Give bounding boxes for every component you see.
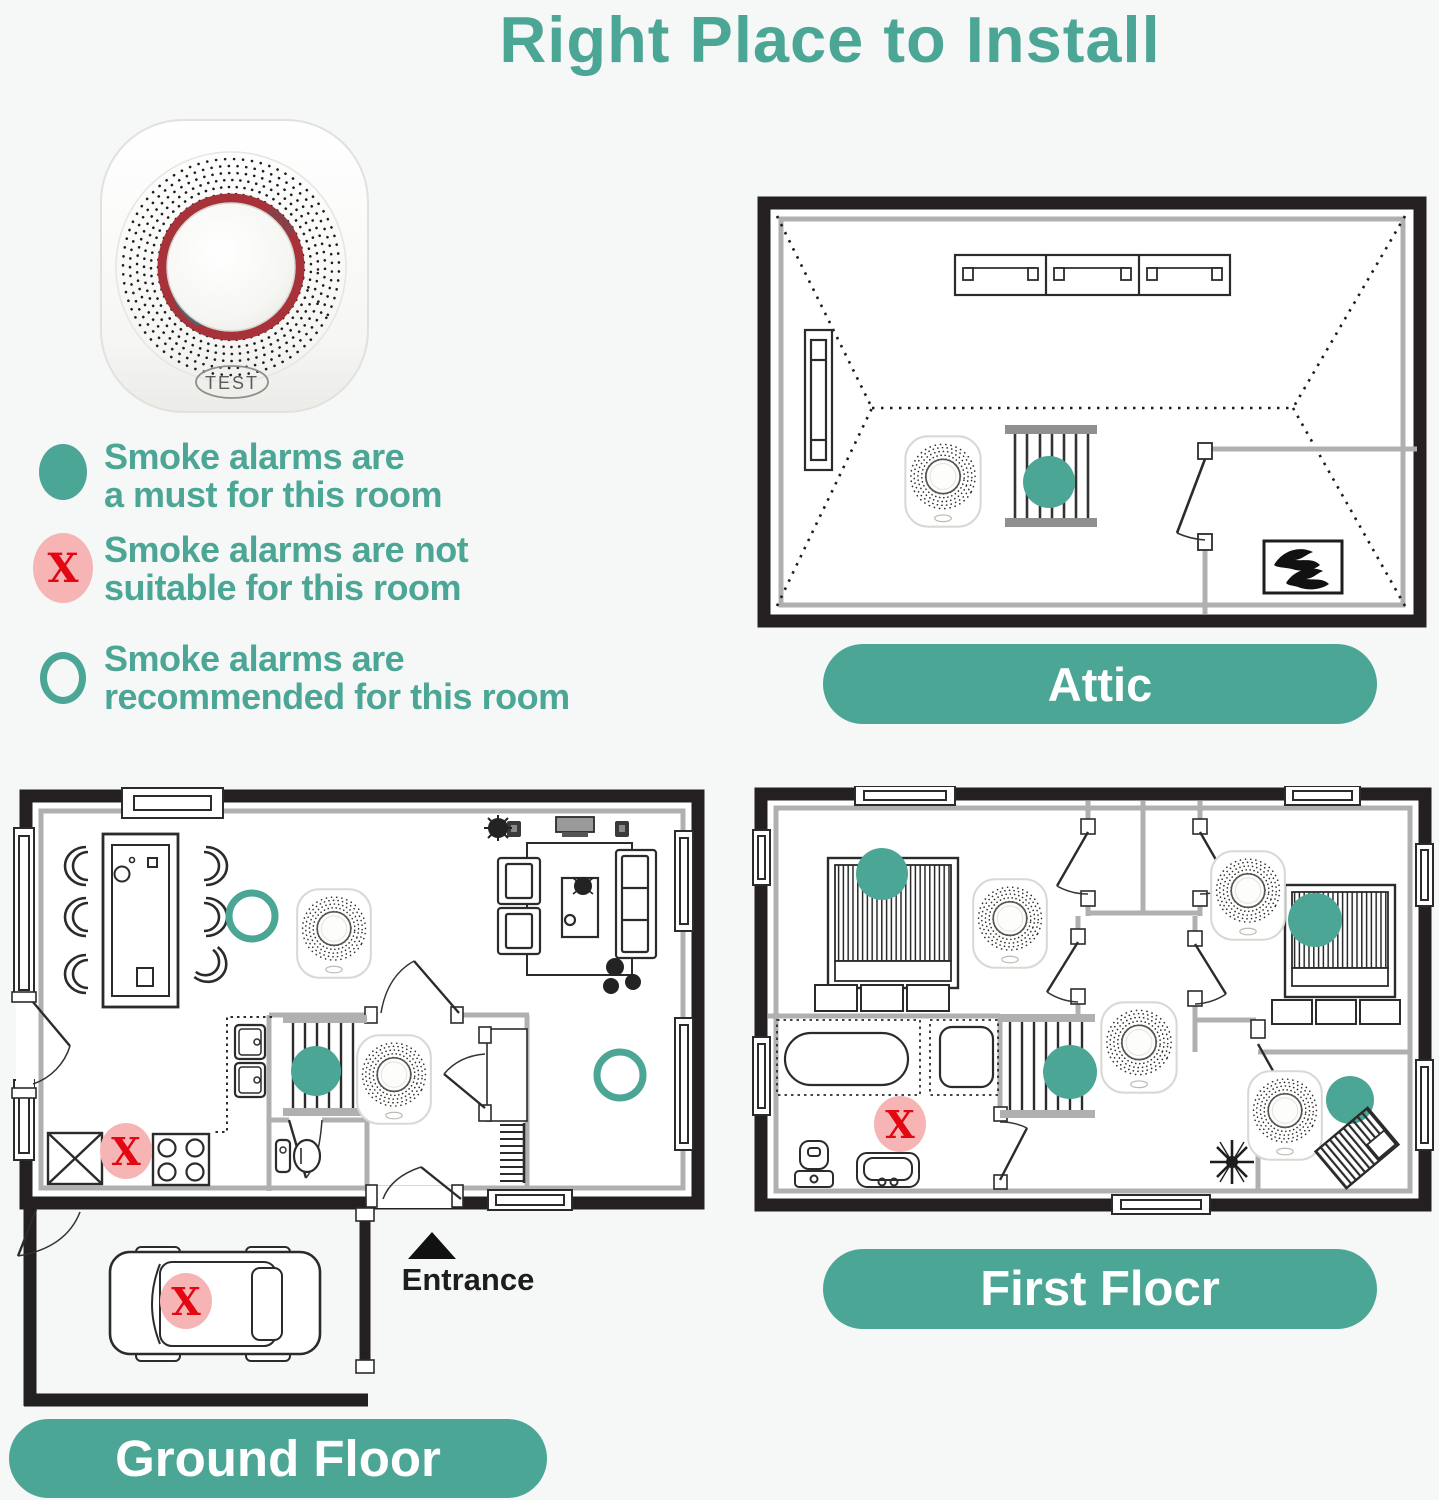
ground-floor-plan: X [10,786,710,1426]
legend-recommended-line1: Smoke alarms are [104,640,570,678]
legend-item-recommended: Smoke alarms are recommended for this ro… [22,640,570,716]
first-smoke-alarm-bedroom-right [1205,848,1291,940]
ground-must-marker-stairs [291,1046,341,1096]
attic-side-window [805,330,832,470]
not-suitable-marker-icon: X [33,533,93,603]
attic-label: Attic [1048,657,1152,712]
svg-text:X: X [885,1102,915,1147]
entrance-arrow-icon [408,1232,456,1259]
legend-item-not-suitable: X Smoke alarms are not suitable for this… [22,531,468,607]
svg-text:X: X [171,1279,201,1324]
first-floor-plan: X [750,786,1438,1218]
attic-floor-plan [753,193,1433,633]
legend-must-line1: Smoke alarms are [104,438,442,476]
legend-not-suitable-line2: suitable for this room [104,569,468,607]
attic-smoke-alarm [899,433,987,527]
toilet [276,1140,320,1172]
attic-skylight [955,255,1230,295]
page-title: Right Place to Install [230,2,1430,77]
first-must-marker-bedroom-right [1288,893,1342,947]
legend-not-suitable-line1: Smoke alarms are not [104,531,468,569]
first-must-marker-bedroom-left [856,848,908,900]
kitchen-counter-x-box [48,1133,102,1184]
legend-item-must: Smoke alarms are a must for this room [22,438,442,514]
attic-must-marker [1023,456,1075,508]
attic-label-pill: Attic [823,644,1377,724]
first-smoke-alarm-hall [1095,999,1183,1093]
ground-floor-label: Ground Floor [115,1429,441,1488]
sofa [616,850,656,958]
smoke-alarm-product-image: TEST [58,110,398,430]
garage: X [18,1206,374,1406]
first-floor-label-pill: First Flocr [823,1249,1377,1329]
first-floor-label: First Flocr [980,1261,1220,1317]
first-not-suitable-marker-bathroom: X [874,1096,926,1152]
first-smoke-alarm-bedroom-left [967,876,1053,968]
dining-table [103,834,178,1007]
stove [153,1134,209,1185]
recommended-marker-icon [40,652,86,704]
entrance-label: Entrance [368,1262,568,1298]
radiator-icon [500,1123,524,1183]
legend-recommended-line2: recommended for this room [104,678,570,716]
must-marker-icon [39,444,87,500]
ground-not-suitable-marker-kitchen: X [100,1123,152,1179]
ground-smoke-alarm-hall [351,1032,437,1124]
svg-text:X: X [111,1129,141,1174]
first-must-marker-stairs [1043,1045,1097,1099]
ground-smoke-alarm-dining [291,886,377,978]
device-test-label: TEST [205,373,259,393]
toilet-first [795,1141,833,1187]
car [110,1247,320,1361]
ground-floor-label-pill: Ground Floor [9,1419,547,1498]
device-alarm-ring [162,198,300,336]
vanity-sink [857,1153,919,1187]
first-smoke-alarm-southeast [1242,1068,1328,1160]
legend-must-line2: a must for this room [104,476,442,514]
ground-not-suitable-marker-garage: X [160,1273,212,1329]
